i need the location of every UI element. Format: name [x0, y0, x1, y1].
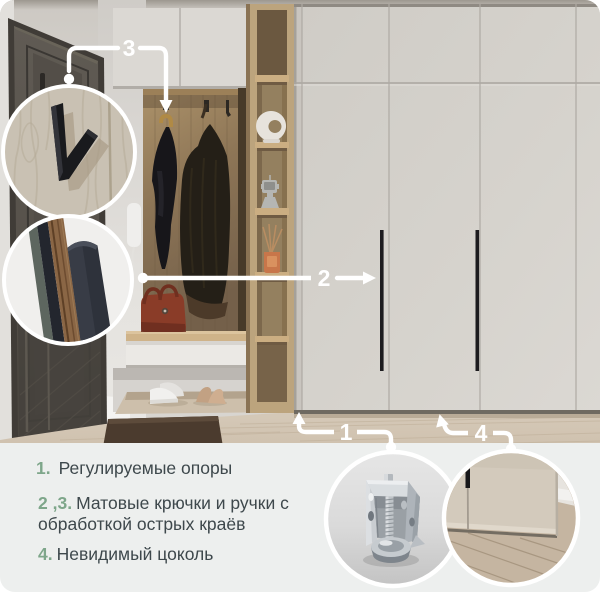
svg-text:4: 4	[475, 420, 488, 446]
svg-text:3: 3	[123, 35, 136, 61]
svg-text:1.Регулируемые опоры: 1.Регулируемые опоры	[36, 458, 232, 478]
svg-text:2 ,3.Матовые крючки и ручки с: 2 ,3.Матовые крючки и ручки с	[38, 493, 289, 513]
svg-text:4.Невидимый цоколь: 4.Невидимый цоколь	[38, 544, 213, 564]
svg-text:обработкой острых краёв: обработкой острых краёв	[38, 514, 245, 534]
svg-text:1: 1	[340, 419, 353, 445]
svg-text:2: 2	[318, 265, 331, 291]
